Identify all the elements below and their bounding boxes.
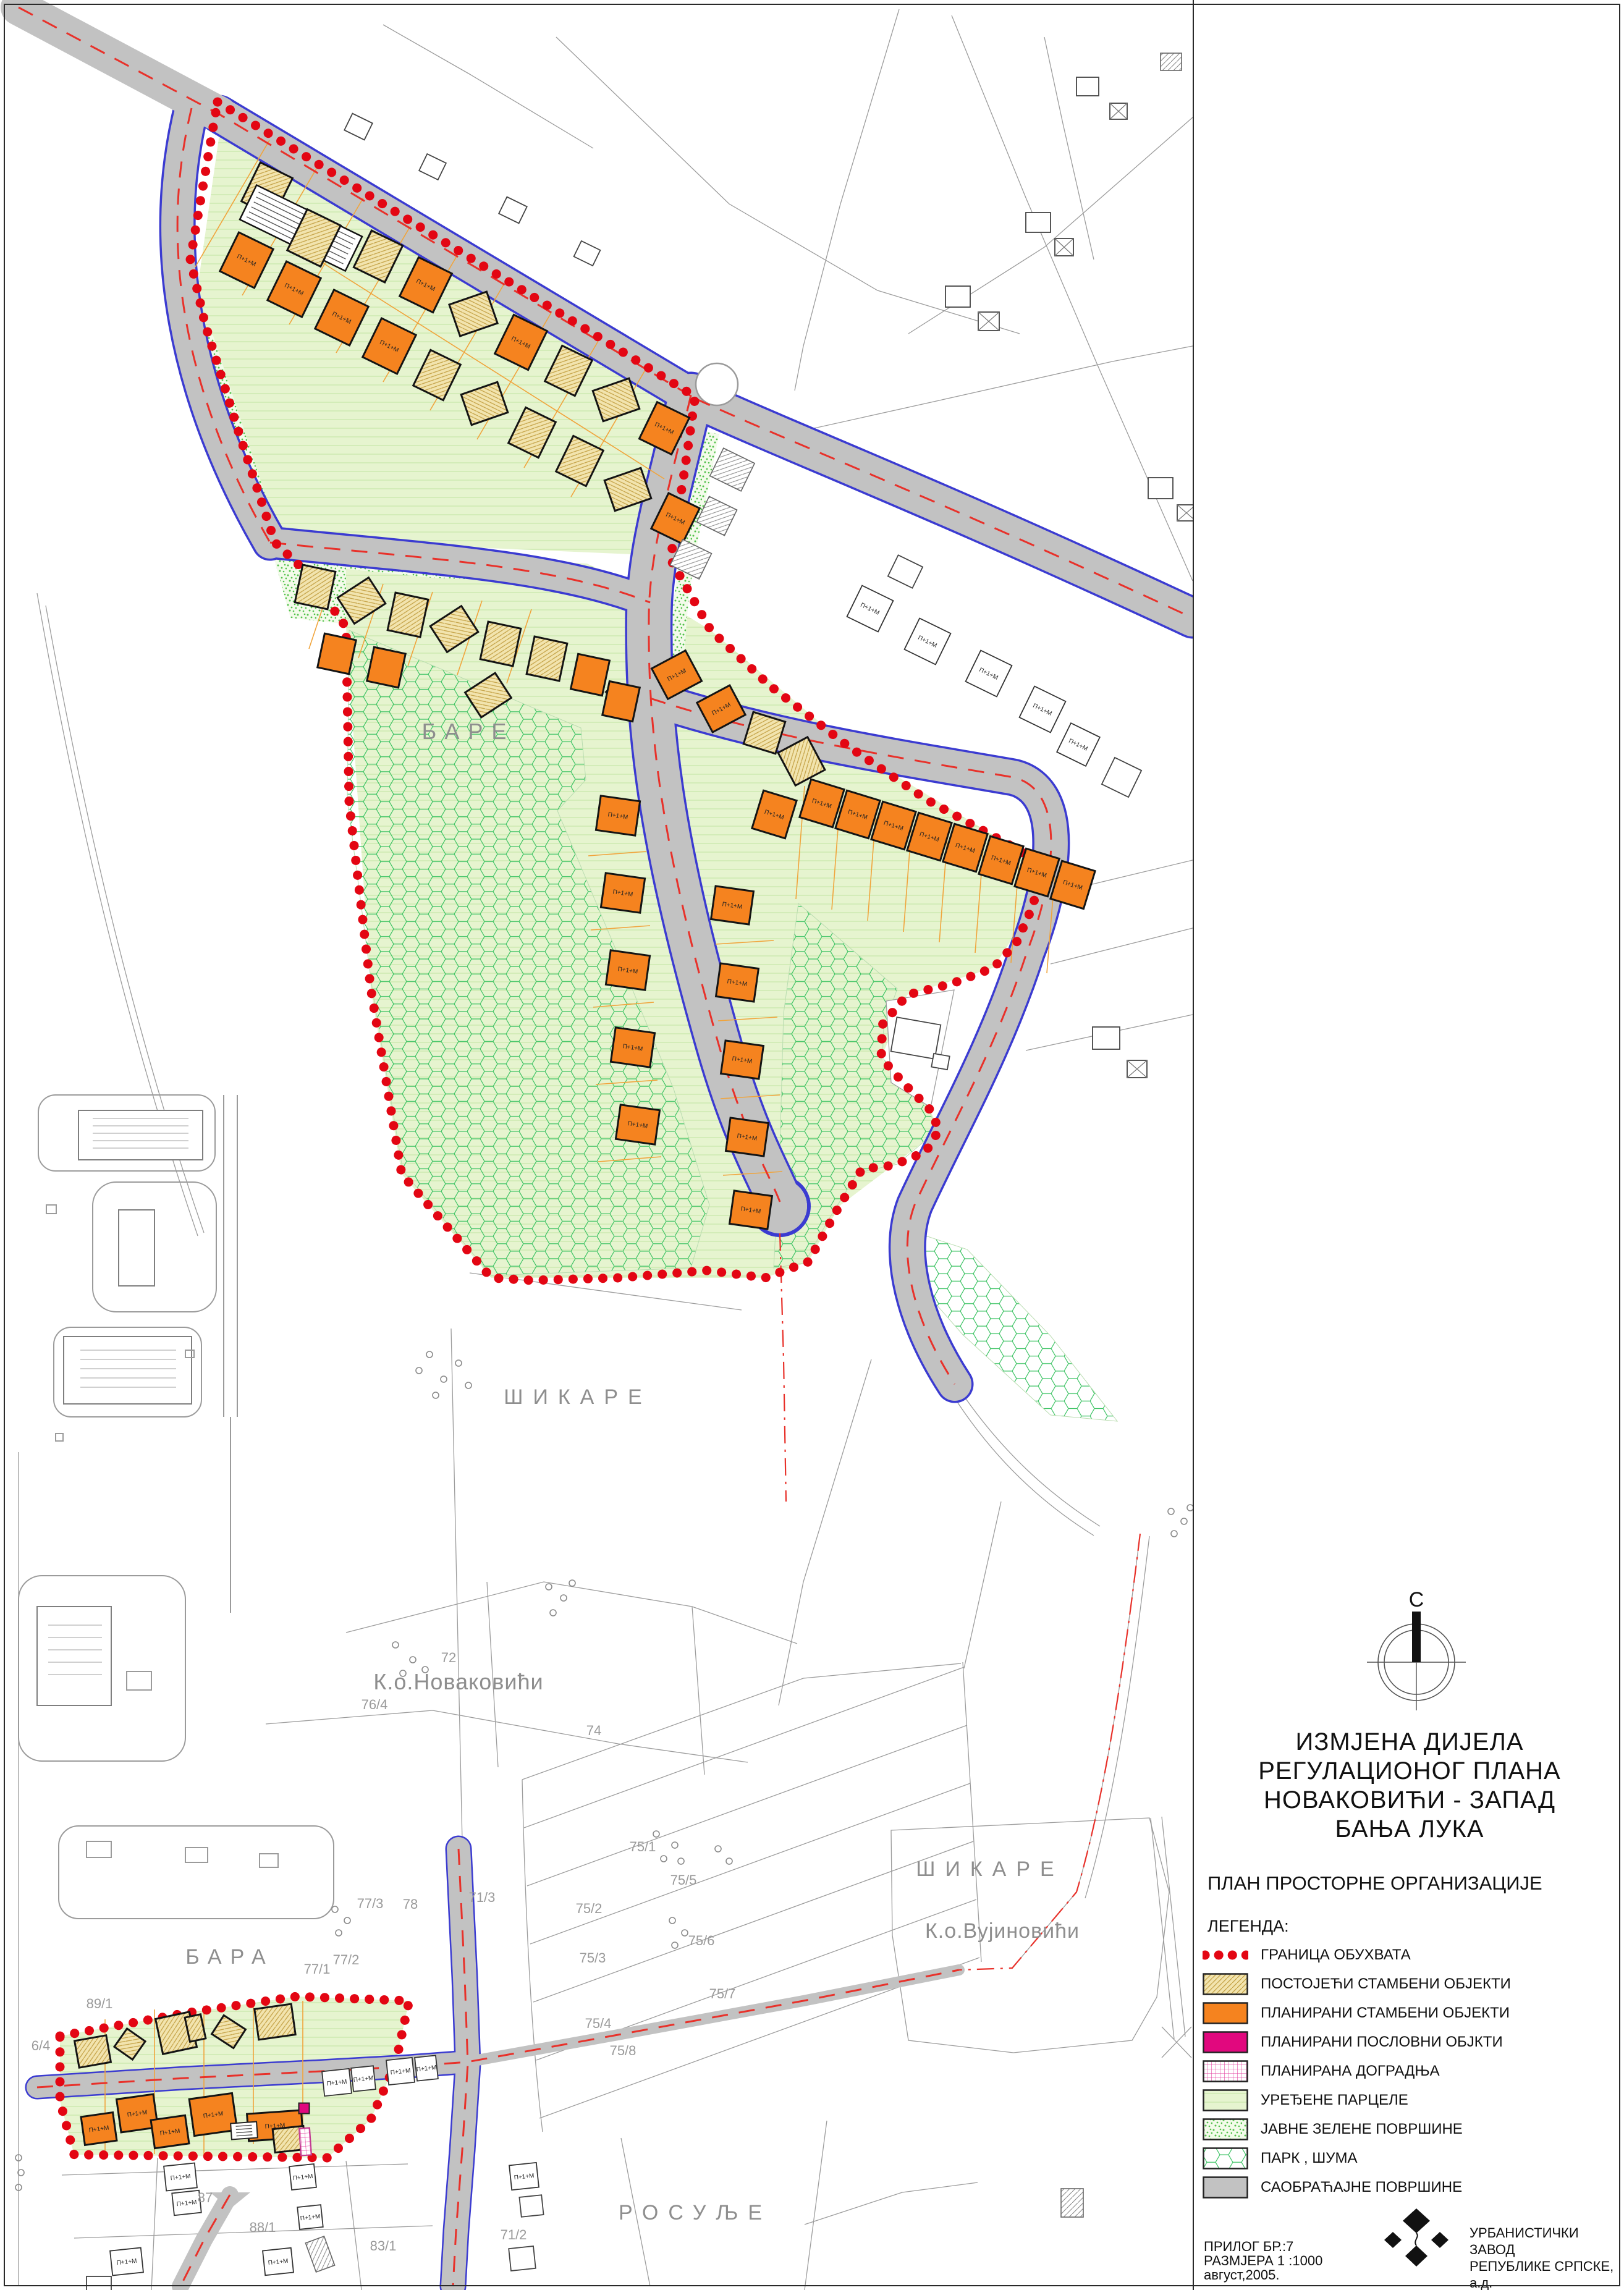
legend-swatch: [1203, 2060, 1248, 2082]
place-label: К.о.Вујиновићи: [925, 1919, 1080, 1943]
legend-label: САОБРАЋАЈНЕ ПОВРШИНЕ: [1261, 2179, 1462, 2196]
legend-swatch: [1203, 2031, 1248, 2053]
parcel-number-label: 75/1: [630, 1839, 656, 1854]
building-o: [603, 681, 640, 721]
building-wx: [978, 312, 999, 331]
org-line-1: УРБАНИСТИЧКИ ЗАВОД: [1470, 2225, 1624, 2258]
legend-item-park-forest: ПАРК , ШУМА: [1194, 2144, 1624, 2173]
legend-item-existing: ПОСТОЈЕЋИ СТАМБЕНИ ОБЈЕКТИ: [1194, 1969, 1624, 1998]
building-wl: П+1+М: [351, 2066, 376, 2092]
parcel-number-label: 75/4: [585, 2016, 612, 2031]
building-gr: [230, 2122, 258, 2140]
building-ol: П+1+М: [615, 1105, 659, 1144]
map-scale: РАЗМЈЕРА 1 :1000: [1204, 2254, 1322, 2268]
legend-item-public-green: ЈАВНЕ ЗЕЛЕНЕ ПОВРШИНЕ: [1194, 2115, 1624, 2144]
building-wl: П+1+М: [164, 2163, 197, 2191]
legend-title: ЛЕГЕНДА:: [1207, 1917, 1289, 1936]
building-ol: П+1+М: [189, 2093, 237, 2136]
parcel-number-label: 75/7: [709, 1986, 736, 2001]
plan-subtitle: ПЛАН ПРОСТОРНЕ ОРГАНИЗАЦИЈЕ: [1207, 1872, 1542, 1895]
building-o: [571, 654, 610, 696]
building-ol: П+1+М: [726, 1118, 769, 1156]
place-label: ШИКАРЕ: [916, 1857, 1064, 1881]
building-w: [519, 2195, 543, 2217]
title-line-4: БАЊА ЛУКА: [1194, 1815, 1624, 1844]
legend-label: ПЛАНИРАНА ДОГРАДЊА: [1261, 2063, 1440, 2080]
parcel-number-label: 75/6: [688, 1933, 715, 1948]
building-wl: П+1+М: [172, 2191, 201, 2215]
legend-swatch: [1203, 2147, 1248, 2170]
building-b: [75, 2035, 111, 2068]
place-label: ШИКАРЕ: [504, 1385, 651, 1409]
building-wx: [1110, 103, 1127, 119]
building-ol: П+1+М: [730, 1191, 772, 1229]
parcel-number-label: 77/2: [333, 1952, 360, 1967]
compass-north-label: С: [1409, 1588, 1424, 1612]
legend-swatch: [1203, 2089, 1248, 2111]
legend-swatch: [1203, 2176, 1248, 2199]
building-wl: П+1+М: [415, 2055, 438, 2081]
building-wx: [1055, 239, 1073, 256]
legend-swatch: [1203, 2002, 1248, 2024]
building-wl: П+1+М: [110, 2247, 143, 2275]
parcel-number-label: 87: [198, 2190, 213, 2205]
parcel-number-label: 77/3: [357, 1896, 384, 1911]
legend-label: ЈАВНЕ ЗЕЛЕНЕ ПОВРШИНЕ: [1261, 2121, 1463, 2138]
parcel-number-label: 76/4: [362, 1697, 388, 1712]
building-wh: [1061, 2189, 1083, 2217]
title-line-2: РЕГУЛАЦИОНОГ ПЛАНА: [1194, 1757, 1624, 1786]
building-ol: П+1+М: [716, 963, 759, 1002]
building-b: [387, 593, 428, 637]
legend-label: ПАРК , ШУМА: [1261, 2150, 1358, 2167]
building-w: [891, 1017, 941, 1059]
parcel-number-label: 75/8: [610, 2043, 636, 2058]
building-b: [295, 565, 336, 609]
title-line-3: НОВАКОВИЋИ - ЗАПАД: [1194, 1786, 1624, 1815]
plan-sheet: П+1+МП+1+МП+1+МП+1+МП+1+МП+1+МП+1+МП+1+М…: [0, 0, 1624, 2290]
attachment-number: ПРИЛОГ БР.:7: [1204, 2239, 1322, 2254]
footer-info: ПРИЛОГ БР.:7 РАЗМЈЕРА 1 :1000 август,200…: [1204, 2239, 1322, 2282]
building-wx: [1177, 505, 1193, 521]
parcel-number-label: 83/1: [370, 2238, 397, 2254]
legend-swatch: [1203, 1973, 1248, 1995]
building-w: [1148, 478, 1173, 499]
building-wl: П+1+М: [322, 2069, 352, 2096]
building-w: [1076, 77, 1099, 96]
parcel-number-label: 75/3: [580, 1950, 606, 1966]
title-line-1: ИЗМЈЕНА ДИЈЕЛА: [1194, 1728, 1624, 1757]
parcel-number-label: 75/2: [576, 1901, 603, 1916]
building-wl: П+1+М: [386, 2058, 415, 2085]
building-wl: П+1+М: [509, 2163, 539, 2190]
legend-item-planned-extension: ПЛАНИРАНА ДОГРАДЊА: [1194, 2056, 1624, 2085]
map-title: ИЗМЈЕНА ДИЈЕЛА РЕГУЛАЦИОНОГ ПЛАНА НОВАКО…: [1194, 1728, 1624, 1844]
north-arrow-icon: С: [1360, 1588, 1474, 1721]
building-wl: П+1+М: [263, 2248, 294, 2276]
place-label: БАРЕ: [422, 719, 515, 744]
building-w: [87, 2276, 111, 2290]
legend-item-planned-residential: ПЛАНИРАНИ СТАМБЕНИ ОБЈЕКТИ: [1194, 1998, 1624, 2027]
building-m: [299, 2103, 310, 2114]
legend-item-planned-business: ПЛАНИРАНИ ПОСЛОВНИ ОБЈКТИ: [1194, 2027, 1624, 2056]
building-w: [509, 2246, 536, 2271]
map-canvas: П+1+МП+1+МП+1+МП+1+МП+1+МП+1+МП+1+МП+1+М…: [0, 0, 1193, 2290]
building-b: [480, 622, 521, 666]
building-w: [1093, 1027, 1120, 1049]
legend-label: ПОСТОЈЕЋИ СТАМБЕНИ ОБЈЕКТИ: [1261, 1975, 1511, 1993]
building-ol: П+1+М: [601, 873, 645, 913]
parcel-number-label: 71/2: [501, 2227, 527, 2242]
org-line-2: РЕПУБЛИКЕ СРПСКЕ, а.д.: [1470, 2258, 1624, 2290]
building-pg: [299, 2127, 311, 2155]
building-ol: П+1+М: [611, 1028, 654, 1067]
parcel-number-label: 75/5: [670, 1872, 697, 1888]
building-wh: [1161, 53, 1182, 70]
legend-item-boundary: ГРАНИЦА ОБУХВАТА: [1194, 1940, 1624, 1969]
parcel-number-label: 71/3: [469, 1890, 496, 1905]
side-panel: С ИЗМЈЕНА ДИЈЕЛА РЕГУЛАЦИОНОГ ПЛАНА НОВА…: [1193, 0, 1624, 2290]
parcel-number-label: 89/1: [87, 1996, 113, 2011]
building-wl: П+1+М: [297, 2205, 323, 2229]
building-w: [931, 1054, 949, 1070]
legend-label: ГРАНИЦА ОБУХВАТА: [1261, 1946, 1411, 1964]
legend-list: ГРАНИЦА ОБУХВАТА ПОСТОЈЕЋИ СТАМБЕНИ ОБЈЕ…: [1194, 1940, 1624, 2202]
building-ol: П+1+М: [596, 796, 640, 835]
building-w: [945, 286, 970, 307]
building-b: [255, 2004, 295, 2040]
map-area: П+1+МП+1+МП+1+МП+1+МП+1+МП+1+МП+1+МП+1+М…: [0, 0, 1193, 2290]
organization-block: УРБАНИСТИЧКИ ЗАВОД РЕПУБЛИКЕ СРПСКЕ, а.д…: [1470, 2225, 1624, 2290]
parcel-number-label: 74: [586, 1723, 601, 1738]
legend-swatch: [1203, 1944, 1248, 1966]
legend-label: ПЛАНИРАНИ ПОСЛОВНИ ОБЈКТИ: [1261, 2034, 1503, 2051]
building-ol: П+1+М: [151, 2115, 189, 2148]
legend-label: УРЕЂЕНЕ ПАРЦЕЛЕ: [1261, 2092, 1408, 2109]
map-date: август,2005.: [1204, 2268, 1322, 2282]
org-logo-icon: [1379, 2207, 1453, 2275]
building-ol: П+1+М: [81, 2113, 117, 2145]
legend-item-arranged-parcels: УРЕЂЕНЕ ПАРЦЕЛЕ: [1194, 2085, 1624, 2115]
parcel-number-label: 77/1: [304, 1961, 331, 1977]
legend-item-traffic: САОБРАЋАЈНЕ ПОВРШИНЕ: [1194, 2173, 1624, 2202]
place-label: К.о.Новаковићи: [373, 1669, 543, 1694]
place-label: РОСУЉЕ: [619, 2201, 772, 2225]
building-ol: П+1+М: [721, 1041, 764, 1079]
parcel-number-label: 72: [441, 1650, 456, 1665]
legend-label: ПЛАНИРАНИ СТАМБЕНИ ОБЈЕКТИ: [1261, 2005, 1510, 2022]
building-b: [527, 636, 567, 681]
building-wl: П+1+М: [289, 2164, 316, 2190]
building-ol: П+1+М: [711, 886, 754, 924]
parcel-number-label: 88/1: [250, 2220, 276, 2235]
roundabout-island: [696, 363, 738, 405]
building-ol: П+1+М: [606, 950, 649, 990]
place-label: БАРА: [185, 1945, 274, 1969]
parcel-number-label: 78: [403, 1896, 418, 1912]
building-w: [1026, 213, 1051, 232]
building-wx: [1127, 1060, 1147, 1078]
parcel-number-label: 6/4: [32, 2038, 51, 2053]
legend-swatch: [1203, 2118, 1248, 2140]
building-o: [367, 647, 406, 688]
building-o: [318, 633, 357, 674]
